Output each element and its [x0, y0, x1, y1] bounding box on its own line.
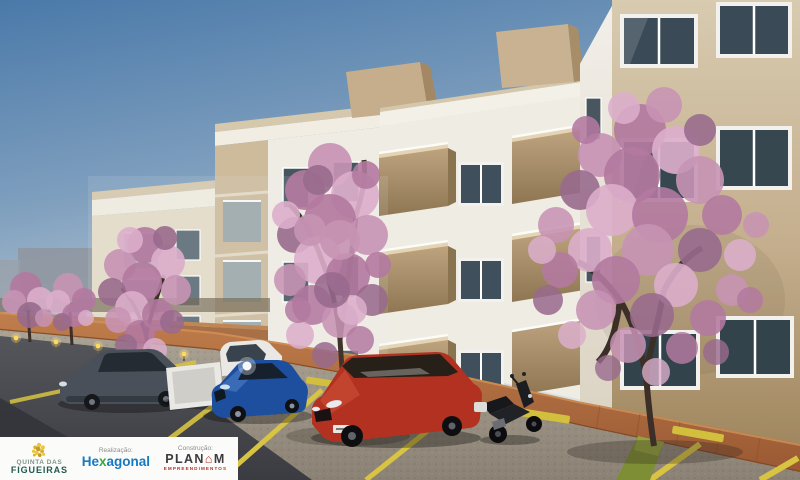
planom-subtitle: EMPREENDIMENTOS: [164, 467, 227, 472]
planom-wordmark: PLAN⌂M: [165, 453, 225, 467]
figueiras-flower-icon: [27, 442, 51, 459]
planom-start: PLAN: [165, 452, 205, 466]
hexagonal-wordmark: Hexagonal: [82, 455, 150, 470]
windows-block-balconies: [458, 162, 504, 390]
realizacao-label: Realização:: [99, 447, 133, 454]
rooftop-tower-right: [496, 24, 584, 88]
planom-house-icon: ⌂: [205, 452, 214, 466]
brand-hexagonal: Realização: Hexagonal: [82, 447, 150, 470]
hexagonal-start: He: [82, 454, 99, 469]
construcao-label: Construção:: [178, 445, 213, 452]
planom-end: M: [214, 452, 226, 466]
footer-logo-bar: QUINTA DAS FIGUEIRAS Realização: Hexagon…: [0, 437, 238, 480]
hexagonal-end: agonal: [106, 454, 150, 469]
brand-quinta-das-figueiras: QUINTA DAS FIGUEIRAS: [11, 442, 68, 476]
brand-planom: Construção: PLAN⌂M EMPREENDIMENTOS: [164, 445, 227, 471]
render-scene: [0, 0, 800, 480]
render-image: QUINTA DAS FIGUEIRAS Realização: Hexagon…: [0, 0, 800, 480]
brand-figueiras-line2: FIGUEIRAS: [11, 466, 68, 476]
